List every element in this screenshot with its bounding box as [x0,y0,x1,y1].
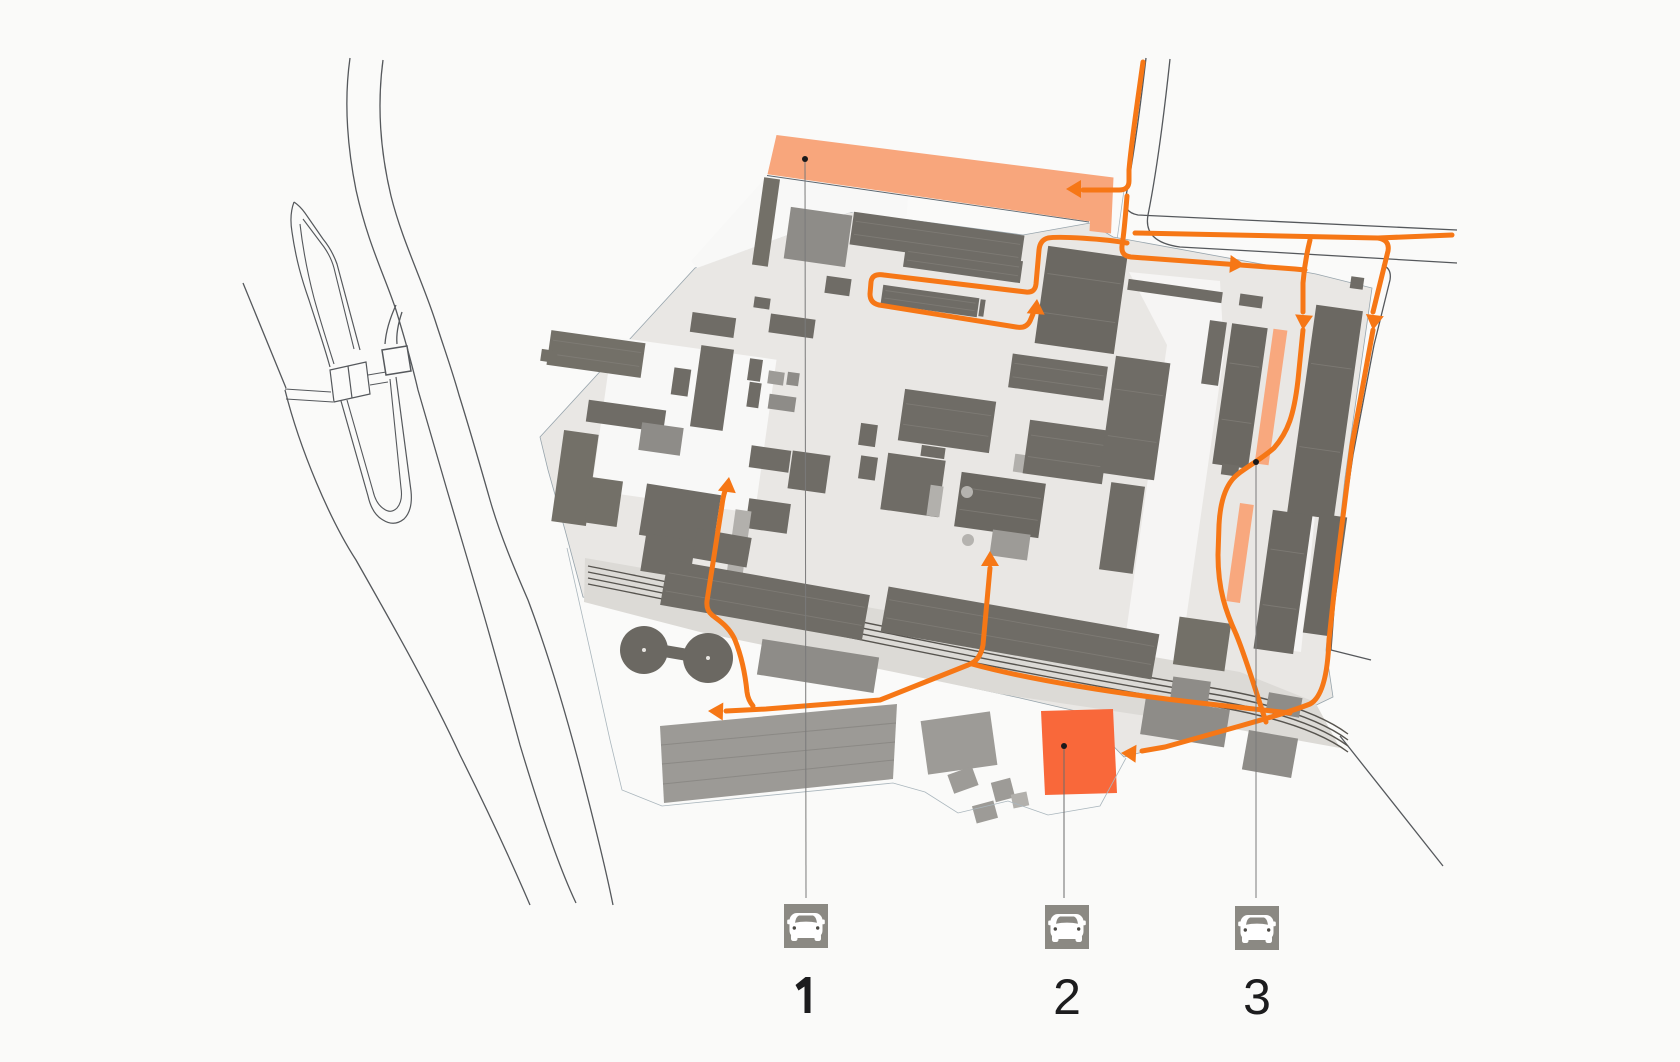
svg-text:2: 2 [1053,969,1081,1025]
svg-text:3: 3 [1243,969,1271,1025]
